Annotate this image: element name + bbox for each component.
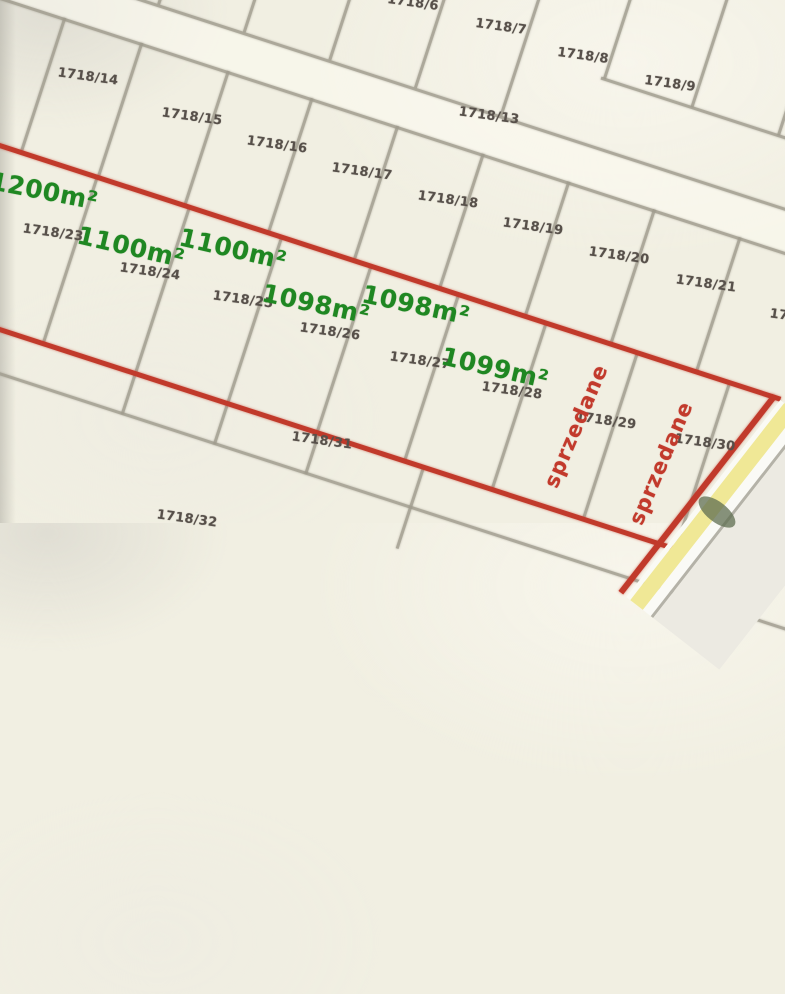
parcel-divider-line	[490, 323, 546, 490]
parcel-divider-line	[690, 0, 738, 107]
parcel-divider-line	[777, 0, 785, 135]
parcel-divider-line	[603, 0, 651, 79]
parcel-divider-line	[242, 0, 311, 32]
parcel-divider-line	[523, 181, 569, 317]
parcel-divider-line	[157, 0, 226, 4]
parcel-divider-line	[694, 237, 740, 373]
cadastral-map-screenshot: { "map_title": "Cadastral parcel map wit…	[0, 0, 785, 523]
parcel-divider-line	[437, 153, 483, 289]
parcel-divider-line	[183, 70, 229, 206]
parcel-divider-line	[19, 17, 65, 153]
parcel-divider-line	[213, 403, 228, 444]
parcel-divider-line	[328, 0, 397, 60]
parcel-divider-line	[120, 373, 135, 414]
parcel-divider-line	[414, 0, 483, 88]
parcel-divider-line	[609, 209, 655, 345]
parcel-divider-line	[96, 42, 142, 178]
cadastral-map-grid	[0, 0, 785, 994]
parcel-divider-line	[352, 125, 398, 261]
parcel-divider-line	[266, 98, 312, 234]
